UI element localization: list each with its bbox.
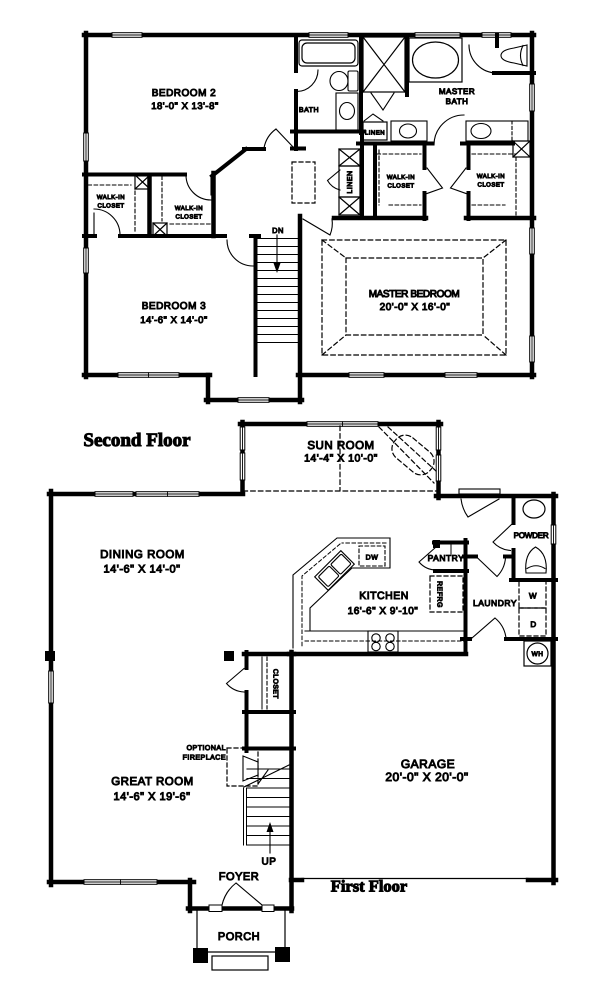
svg-text:OPTIONAL: OPTIONAL [187,745,226,752]
svg-text:DW: DW [366,555,379,562]
svg-text:CLOSET: CLOSET [175,214,202,221]
svg-text:POWDER: POWDER [514,531,549,540]
svg-text:DN: DN [272,226,284,235]
svg-text:DINING ROOM: DINING ROOM [100,549,185,561]
svg-text:20'-0" X 16'-0": 20'-0" X 16'-0" [380,302,451,313]
svg-text:MASTER BEDROOM: MASTER BEDROOM [369,289,460,300]
svg-text:WALK-IN: WALK-IN [175,205,203,212]
svg-text:D: D [530,620,536,629]
svg-text:GARAGE: GARAGE [401,757,455,771]
svg-text:14'-6" X 14'-0": 14'-6" X 14'-0" [140,315,208,326]
svg-text:14'-6" X 19'-6": 14'-6" X 19'-6" [114,791,191,803]
svg-text:LAUNDRY: LAUNDRY [473,598,517,608]
svg-text:CLOSET: CLOSET [272,669,279,699]
svg-text:SUN ROOM: SUN ROOM [307,440,374,452]
svg-text:Second Floor: Second Floor [83,430,191,451]
svg-text:18'-0" X 13'-8": 18'-0" X 13'-8" [151,101,219,112]
svg-text:GREAT ROOM: GREAT ROOM [111,776,194,788]
svg-text:MASTER: MASTER [439,87,475,96]
svg-text:BEDROOM 2: BEDROOM 2 [152,88,217,99]
svg-text:CLOSET: CLOSET [387,183,414,190]
svg-text:First Floor: First Floor [331,877,408,896]
svg-text:FIREPLACE: FIREPLACE [183,755,226,762]
svg-text:PANTRY: PANTRY [428,553,465,563]
svg-text:WALK-IN: WALK-IN [97,194,125,201]
svg-text:LINEN: LINEN [365,130,385,137]
svg-text:LINEN: LINEN [347,170,354,193]
svg-text:BATH: BATH [299,107,319,114]
svg-text:BATH: BATH [446,97,469,106]
svg-text:14'-6" X 14'-0": 14'-6" X 14'-0" [104,564,181,576]
svg-text:PORCH: PORCH [218,931,260,943]
svg-text:WALK-IN: WALK-IN [387,174,415,181]
svg-text:REFRG: REFRG [436,581,443,608]
svg-text:20'-0" X 20'-0": 20'-0" X 20'-0" [385,770,468,784]
svg-text:WH: WH [532,651,544,658]
svg-text:BEDROOM 3: BEDROOM 3 [142,301,207,312]
svg-text:KITCHEN: KITCHEN [359,590,409,602]
svg-text:CLOSET: CLOSET [477,182,504,189]
svg-text:WALK-IN: WALK-IN [477,173,505,180]
svg-text:FOYER: FOYER [219,871,259,883]
svg-text:14'-4" X 10'-0": 14'-4" X 10'-0" [304,453,378,465]
svg-text:CLOSET: CLOSET [97,203,124,210]
svg-text:UP: UP [262,857,277,868]
svg-text:W: W [529,592,537,601]
svg-text:16'-6" X 9'-10": 16'-6" X 9'-10" [348,606,419,617]
